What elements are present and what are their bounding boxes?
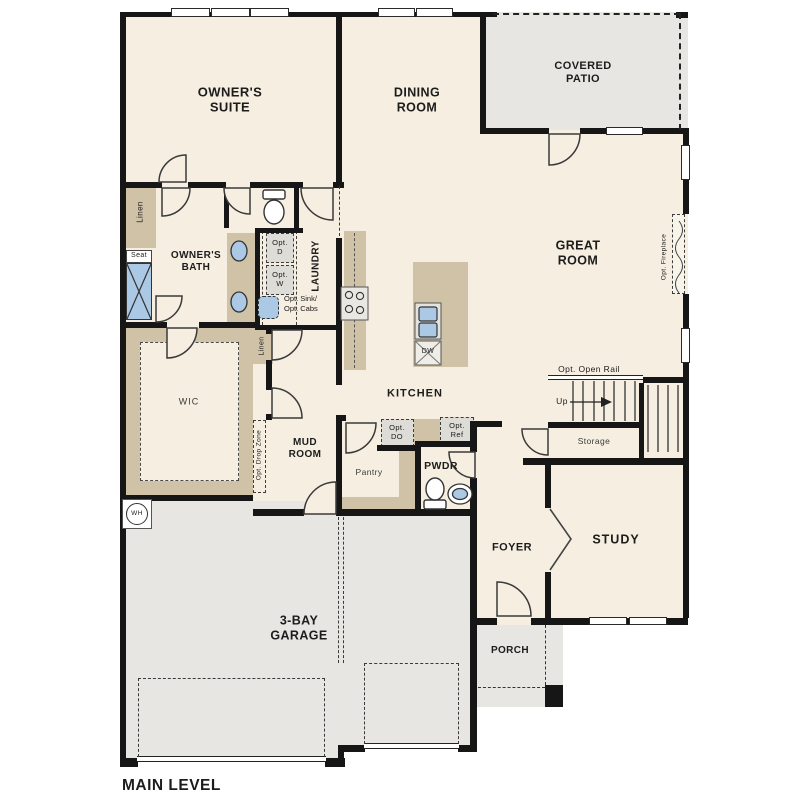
- room-label-owners-suite: OWNER'S SUITE: [198, 85, 262, 116]
- wall: [470, 478, 477, 618]
- wall: [548, 422, 639, 428]
- wall: [523, 458, 688, 465]
- wall: [120, 12, 126, 767]
- wall: [477, 421, 502, 427]
- wall: [199, 322, 260, 328]
- label-opt-washer: Opt. W: [272, 271, 288, 289]
- window: [250, 8, 289, 17]
- room-label-dining-room: DINING ROOM: [394, 85, 440, 115]
- patio-edge-dashed: [679, 13, 681, 130]
- wall: [120, 322, 167, 328]
- label-dishwasher: DW: [422, 348, 434, 356]
- room-label-covered-patio: COVERED PATIO: [554, 60, 611, 86]
- wall: [545, 618, 590, 625]
- label-opt-refrigerator: Opt. Ref: [449, 422, 465, 440]
- room-label-study: STUDY: [592, 533, 639, 548]
- window: [629, 617, 667, 625]
- garage-door-apron-dashed: [138, 678, 325, 757]
- room-label-powder: PWDR: [424, 460, 458, 472]
- wall: [415, 441, 421, 516]
- wall: [294, 188, 299, 228]
- wall: [120, 182, 162, 188]
- window: [171, 8, 210, 17]
- wall: [683, 180, 689, 214]
- wall: [188, 182, 226, 188]
- wall: [531, 618, 545, 625]
- plan-title: MAIN LEVEL: [122, 777, 221, 795]
- garage-bay-divider-dashed: [338, 517, 339, 663]
- window: [589, 617, 627, 625]
- wall: [545, 572, 551, 618]
- wall: [458, 745, 477, 752]
- room-label-great-room: GREAT ROOM: [556, 238, 601, 268]
- wall: [255, 228, 303, 233]
- label-linen-bath: Linen: [136, 201, 145, 223]
- wall: [470, 421, 477, 452]
- window: [416, 8, 453, 17]
- label-opt-dryer: Opt. D: [272, 239, 288, 257]
- counter-centerline: [354, 233, 355, 368]
- wall: [580, 128, 606, 134]
- window: [606, 127, 643, 135]
- window: [681, 145, 690, 180]
- label-linen-hall: Linen: [259, 336, 266, 355]
- wall: [266, 414, 272, 420]
- wall: [266, 328, 272, 334]
- wall: [336, 238, 342, 385]
- label-opt-sink-cabs: Opt. Sink/ Opt. Cabs: [284, 294, 318, 314]
- wall: [120, 758, 138, 767]
- wall: [480, 12, 486, 134]
- floor-plan: OWNER'S SUITE DINING ROOM COVERED PATIO …: [0, 0, 810, 810]
- porch-column: [545, 685, 563, 707]
- wic-floor: [140, 342, 239, 481]
- room-label-storage: Storage: [578, 436, 611, 446]
- window: [681, 328, 690, 363]
- label-water-heater: WH: [131, 510, 143, 518]
- window: [378, 8, 415, 17]
- patio-edge-dashed: [493, 13, 680, 15]
- room-label-pantry: Pantry: [356, 467, 383, 477]
- porch-edge-dashed: [478, 687, 545, 688]
- room-label-laundry: LAUNDRY: [311, 240, 322, 291]
- laundry-opt-sink: [258, 296, 279, 319]
- window: [211, 8, 250, 17]
- wall: [421, 441, 477, 447]
- garage-bay-divider-dashed: [343, 517, 344, 663]
- vanity-counter: [227, 233, 255, 323]
- wall: [338, 745, 344, 767]
- room-label-owners-bath: OWNER'S BATH: [171, 250, 221, 274]
- room-label-foyer: FOYER: [492, 542, 532, 555]
- label-opt-fireplace: Opt. Fireplace: [661, 234, 668, 280]
- opt-fireplace-box: [672, 214, 685, 294]
- room-label-mud-room: MUD ROOM: [289, 437, 322, 461]
- wall: [253, 509, 304, 516]
- shower: [126, 263, 152, 320]
- wall: [643, 377, 683, 383]
- wall: [683, 362, 689, 618]
- wall: [477, 618, 497, 625]
- label-stairs-up: Up: [556, 396, 568, 406]
- label-opt-drop-zone: Opt. Drop Zone: [256, 430, 263, 480]
- wall: [336, 420, 342, 515]
- porch-edge-dashed: [545, 625, 546, 685]
- label-seat: Seat: [131, 252, 147, 260]
- room-label-garage: 3-BAY GARAGE: [270, 613, 327, 643]
- label-opt-open-rail: Opt. Open Rail: [558, 364, 620, 374]
- wall: [639, 383, 644, 462]
- wall: [336, 509, 477, 516]
- wall: [545, 465, 551, 508]
- wall: [266, 360, 272, 390]
- pantry-shelf-bottom: [342, 497, 415, 509]
- opt-wall-dashed: [339, 186, 340, 236]
- wall: [643, 128, 688, 134]
- wall: [470, 618, 477, 752]
- wall: [336, 12, 342, 182]
- room-label-kitchen: KITCHEN: [387, 388, 443, 401]
- open-rail-line: [548, 375, 643, 380]
- wall: [480, 128, 549, 134]
- room-label-porch: PORCH: [491, 645, 529, 657]
- wall: [224, 188, 229, 228]
- room-label-wic: WIC: [179, 397, 200, 408]
- wall: [336, 415, 346, 421]
- kitchen-counter: [344, 231, 366, 370]
- label-opt-double-oven: Opt. DO: [389, 424, 405, 442]
- wall: [683, 294, 689, 329]
- wall: [667, 618, 688, 625]
- garage-door-apron-dashed: [364, 663, 459, 744]
